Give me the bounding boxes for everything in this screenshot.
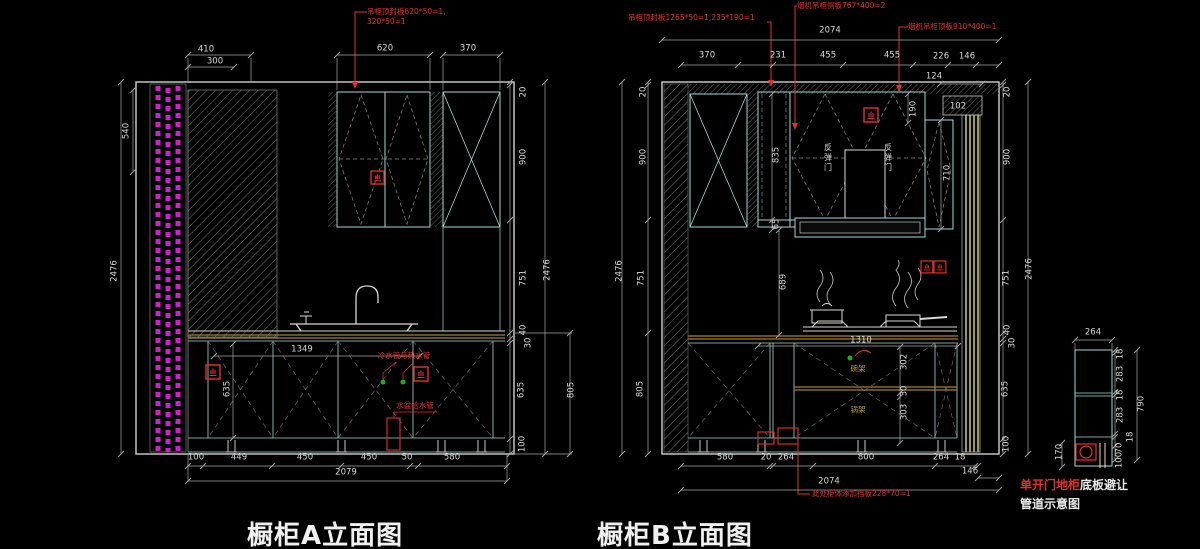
hood-chimney: [845, 150, 885, 218]
dim-label: 2079: [335, 468, 357, 477]
glass-panel: [188, 90, 277, 337]
dim-label: 303: [900, 404, 909, 420]
wall-hatch: [664, 84, 688, 452]
dim-label: 146: [962, 467, 978, 476]
dim-label: 50: [402, 453, 413, 462]
rebound-door-label: 反弹门: [823, 143, 834, 173]
annotation: 320*50=1: [367, 18, 406, 26]
filler-hatch: [328, 92, 337, 227]
dim-label: 805: [636, 381, 645, 397]
dim-label: 264: [1085, 328, 1101, 337]
dim-label: 751: [1002, 270, 1011, 286]
dim-label: 835: [772, 147, 781, 163]
pipe-label: 水盆给水管: [396, 402, 434, 410]
dim-label: 231: [770, 51, 786, 60]
base-door-swing: [208, 341, 493, 438]
dim-label: 283: [1116, 366, 1125, 382]
rebound-door-label: 反弹门: [883, 143, 894, 173]
rebound-door-swing: [762, 94, 926, 220]
annotation: 吊柜顶封板1265*50=1,235*190=1: [628, 14, 755, 22]
dim-label: 2476: [543, 259, 552, 281]
leader-top-panel: [355, 12, 367, 84]
dim-label: 124: [926, 72, 942, 81]
tall-cabinet: [690, 94, 747, 227]
dim-label: 800: [858, 453, 874, 462]
dim-label: 264: [778, 453, 794, 462]
dim-label: 20: [1003, 87, 1012, 98]
leaders-b: [767, 6, 908, 494]
dim-label: 2074: [818, 477, 840, 486]
annotation: 烟机吊柜侧板767*400=2: [797, 2, 885, 10]
detail-caption-line1: 单开门地柜底板避让: [1020, 476, 1128, 493]
steam: [817, 260, 921, 308]
dim-label: 20: [519, 87, 528, 98]
dim-label: 1310: [850, 336, 872, 345]
dim-label: 790: [1137, 396, 1146, 412]
dim-label: 100: [1115, 452, 1124, 468]
dim-label: 40: [1003, 325, 1012, 336]
detail-caption-white: 底板避让: [1080, 478, 1128, 492]
elevation-b-title: 橱柜B立面图: [597, 515, 753, 549]
faucet: [356, 286, 378, 324]
base-cabinets: [688, 343, 957, 452]
dim-label: 30: [524, 338, 533, 349]
dim-label: 540: [122, 123, 131, 139]
door-swing: [339, 95, 428, 224]
detail-caption-red: 单开门地柜: [1020, 478, 1080, 492]
dim-label: 580: [444, 453, 460, 462]
dim-label: 370: [699, 51, 715, 60]
dim-label: 410: [198, 45, 214, 54]
pot-rack-label: 锅架: [851, 406, 866, 414]
dim-label: 2074: [819, 26, 841, 35]
dim-label: 20: [761, 453, 772, 462]
dim-label: 30: [900, 386, 909, 397]
elevation-a: [118, 12, 573, 484]
cabinet-feet: [226, 440, 487, 452]
dim-label: 751: [637, 270, 646, 286]
gas-point: [848, 356, 853, 361]
dim-label: 190: [909, 101, 918, 117]
dim-label: 580: [717, 453, 733, 462]
elevation-b: [619, 6, 1031, 494]
dim-label: 1349: [291, 345, 313, 354]
dim-label: 2476: [110, 260, 119, 282]
dim-label: 450: [297, 453, 313, 462]
dim-label: 370: [460, 44, 476, 53]
dim-label: 100: [518, 436, 527, 452]
dim-label: 635: [1001, 381, 1010, 397]
bottom-pipes: [758, 428, 798, 444]
dim-label: 146: [959, 52, 975, 61]
dim-label: 635: [517, 382, 526, 398]
magenta-hatch: [158, 86, 178, 452]
dim-label: 65: [772, 219, 781, 230]
dim-label: 449: [231, 453, 247, 462]
dim-label: 30: [1008, 338, 1017, 349]
dim-label: 100: [188, 453, 204, 462]
cabinet-feet: [698, 440, 947, 452]
bowl-rack-label: 碗架: [851, 365, 866, 373]
dim-label: 635: [223, 381, 232, 397]
dim-label: 18: [1116, 390, 1125, 401]
dim-label: 805: [567, 382, 576, 398]
tall-cabinet: [443, 92, 500, 331]
dim-label: 283: [1116, 407, 1125, 423]
pipe-section: [1080, 446, 1092, 458]
dim-label: 20: [639, 87, 648, 98]
dim-label: 710: [943, 165, 952, 181]
dim-label: 302: [900, 354, 909, 370]
elevation-a-title: 橱柜A立面图: [247, 515, 403, 549]
cold-water-point: [381, 380, 386, 385]
dim-label: 18: [955, 453, 966, 462]
cad-canvas: 吊柜顶封板620*50=1, 320*50=1 410 300 620 370 …: [0, 0, 1200, 549]
dim-label: 751: [519, 270, 528, 286]
drawing-linework: [0, 0, 1200, 549]
dim-label: 300: [207, 57, 223, 66]
gas-valve: [855, 350, 871, 356]
dim-label: 2476: [615, 260, 624, 282]
base-cabinet-detail: [1059, 337, 1140, 470]
dim-label: 455: [884, 51, 900, 60]
cooktop: [803, 304, 957, 332]
cabinet-leg: [1098, 443, 1108, 468]
pipe-duct: [962, 115, 980, 452]
pipe-label: 冷水管与热水管: [378, 352, 431, 360]
wall-cabinet: [337, 92, 430, 227]
dim-label: 170: [1055, 444, 1064, 460]
dim-label: 264: [933, 453, 949, 462]
annotation: 烟机吊柜顶板910*400=1: [908, 23, 996, 31]
filler-hatch: [430, 92, 443, 227]
dim-label: 100: [1002, 436, 1011, 452]
dim-label: 18: [1126, 432, 1135, 443]
dim-label: 455: [820, 51, 836, 60]
dim-label: 40: [519, 325, 528, 336]
dim-label: 2476: [1025, 258, 1034, 280]
dim-label: 900: [1003, 149, 1012, 165]
dim-label: 102: [950, 102, 966, 111]
dim-label: 900: [519, 149, 528, 165]
dim-label: 900: [639, 149, 648, 165]
dim-label: 450: [361, 453, 377, 462]
dim-label: 18: [1116, 349, 1125, 360]
annotation: 吊柜顶封板620*50=1,: [367, 8, 446, 16]
dim-label: 226: [933, 52, 949, 61]
hot-water-point: [401, 380, 406, 385]
dim-label: 689: [779, 274, 788, 290]
soap-dispenser: [300, 312, 312, 324]
dim-label: 620: [377, 44, 393, 53]
sink-and-faucet: [290, 286, 418, 331]
detail-caption-line2: 管道示意图: [1020, 495, 1080, 512]
annotation: 此处柜体添加挡板228*70=1: [812, 490, 911, 498]
